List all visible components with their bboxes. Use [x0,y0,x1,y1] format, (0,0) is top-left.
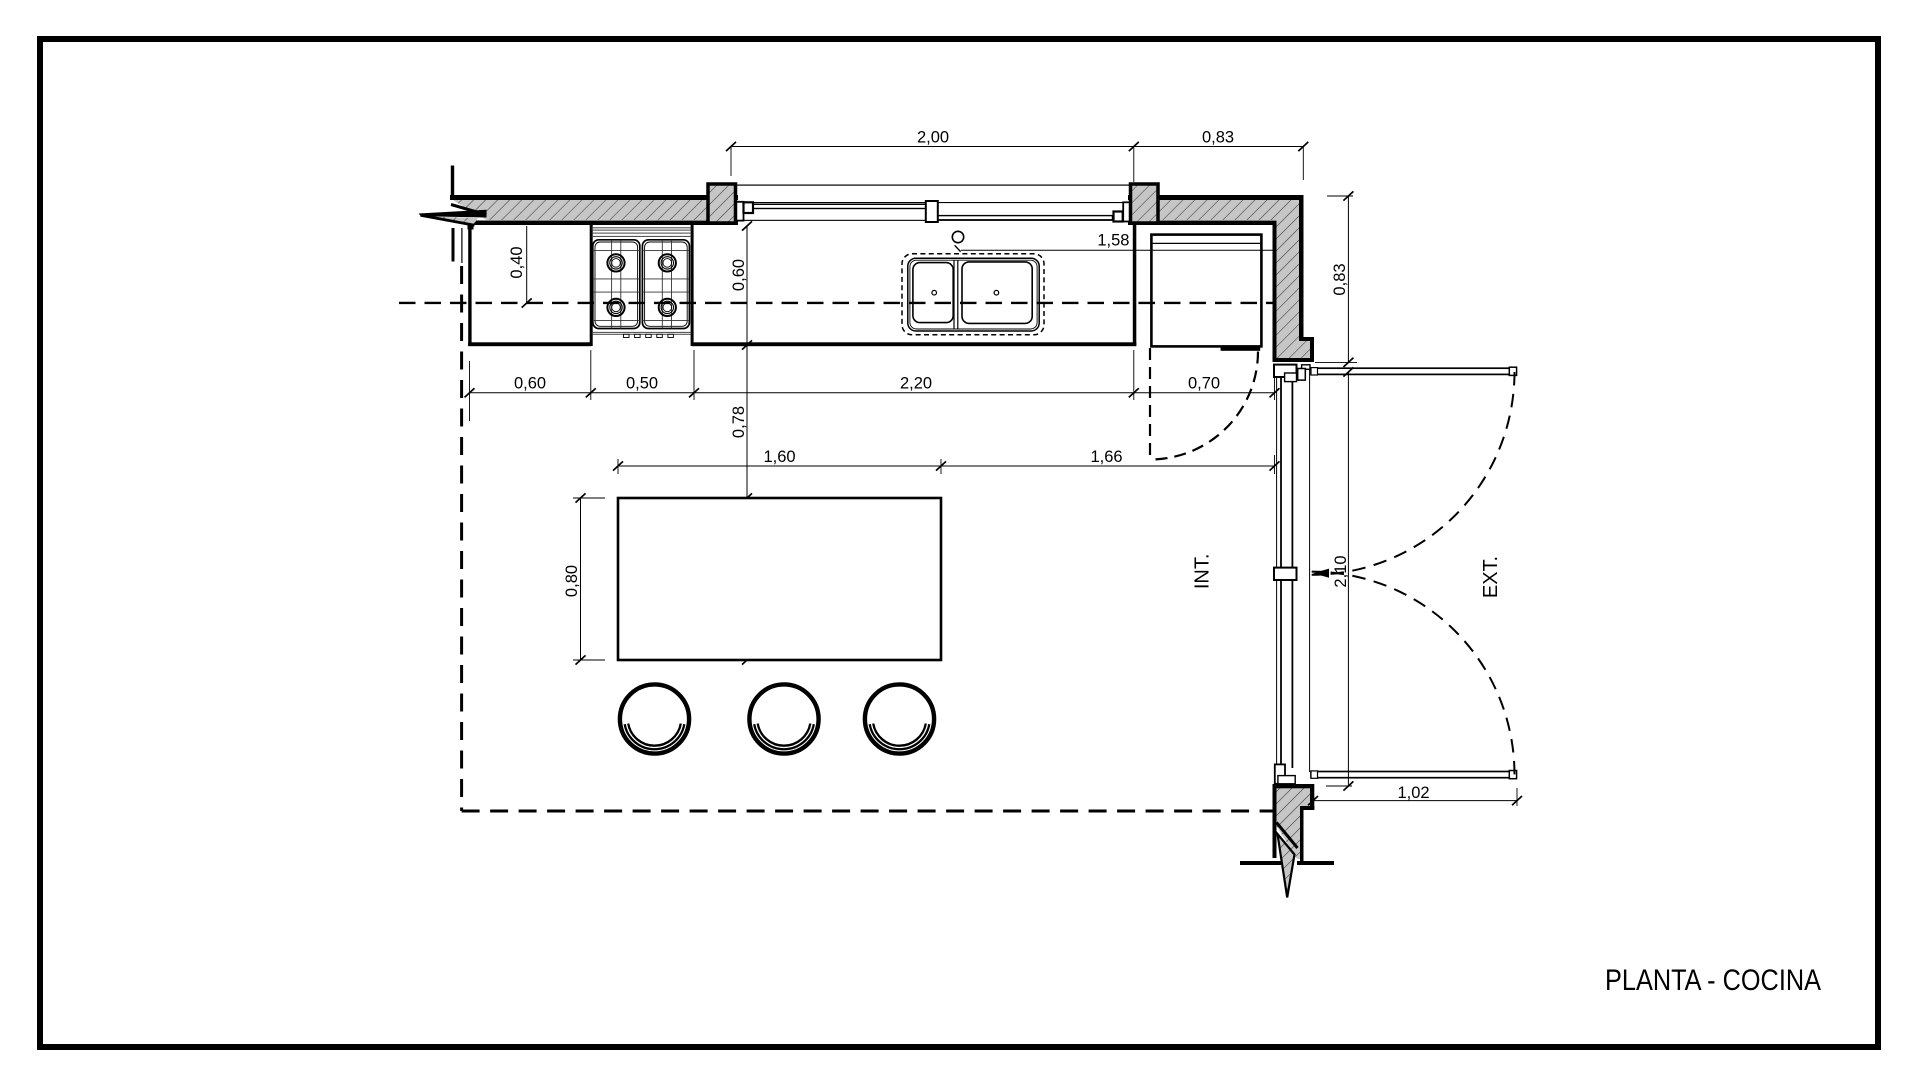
svg-text:0,83: 0,83 [1202,128,1234,146]
svg-text:2,10: 2,10 [1332,555,1350,587]
svg-text:EXT.: EXT. [1480,556,1502,598]
svg-text:1,66: 1,66 [1090,448,1122,466]
svg-text:INT.: INT. [1192,554,1214,590]
svg-text:0,60: 0,60 [514,375,546,393]
svg-text:0,40: 0,40 [508,246,526,278]
svg-text:0,83: 0,83 [1331,263,1349,295]
svg-text:0,60: 0,60 [730,259,748,291]
svg-text:2,00: 2,00 [917,128,949,146]
svg-text:1,58: 1,58 [1097,231,1129,249]
svg-text:0,78: 0,78 [730,406,748,438]
svg-text:PLANTA - COCINA: PLANTA - COCINA [1605,964,1821,997]
svg-text:0,80: 0,80 [563,565,581,597]
svg-text:2,20: 2,20 [900,375,932,393]
svg-text:0,70: 0,70 [1188,375,1220,393]
svg-text:0,50: 0,50 [626,375,658,393]
svg-text:1,60: 1,60 [763,448,795,466]
svg-text:1,02: 1,02 [1397,784,1429,802]
